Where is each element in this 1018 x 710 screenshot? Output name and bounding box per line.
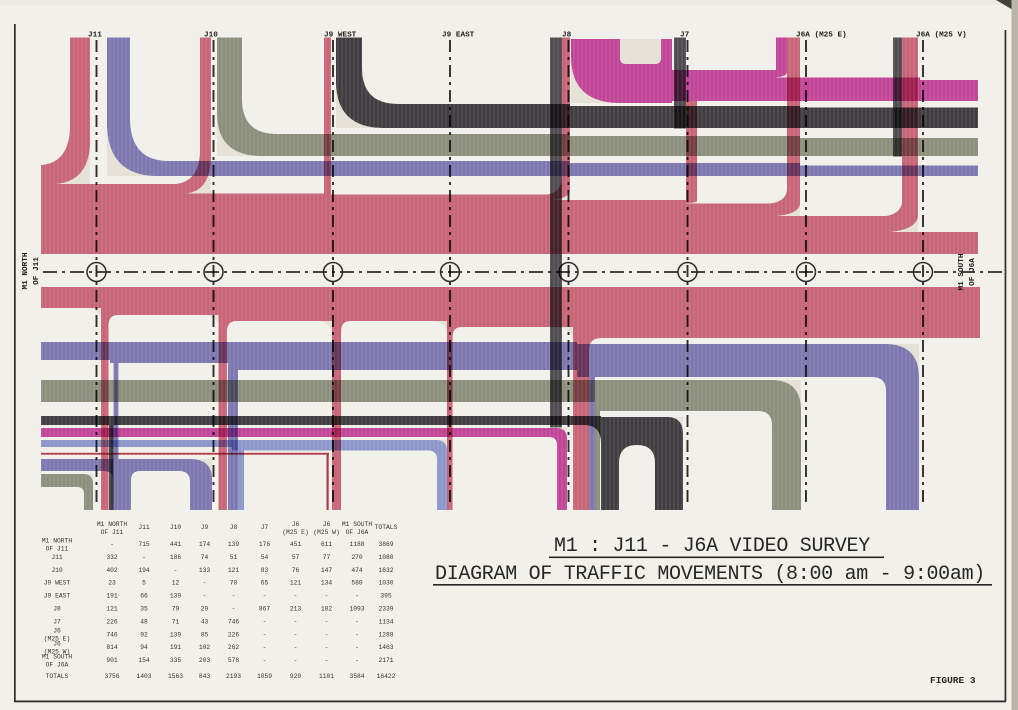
svg-text:1134: 1134 (378, 618, 393, 625)
svg-text:71: 71 (172, 618, 180, 625)
svg-text:J9 EAST: J9 EAST (442, 32, 475, 40)
svg-text:M1 SOUTH: M1 SOUTH (958, 253, 966, 290)
svg-text:194: 194 (138, 567, 150, 574)
svg-text:121: 121 (228, 567, 240, 574)
svg-text:-: - (294, 618, 298, 625)
svg-text:J11: J11 (88, 32, 102, 40)
svg-text:(M25 W): (M25 W) (313, 529, 339, 536)
svg-text:1632: 1632 (378, 567, 393, 574)
svg-text:121: 121 (290, 580, 302, 587)
svg-text:-: - (355, 644, 359, 651)
svg-text:147: 147 (321, 567, 333, 574)
svg-text:J8: J8 (562, 32, 572, 40)
svg-text:-: - (263, 593, 267, 600)
svg-text:746: 746 (106, 631, 118, 638)
svg-text:M1 : J11 - J6A VIDEO SURVEY: M1 : J11 - J6A VIDEO SURVEY (554, 535, 870, 558)
svg-text:57: 57 (292, 554, 300, 561)
svg-text:1059: 1059 (257, 673, 272, 680)
svg-text:-: - (232, 593, 236, 600)
svg-text:-: - (110, 541, 114, 548)
svg-text:-: - (325, 631, 329, 638)
svg-text:J6: J6 (53, 628, 61, 635)
svg-text:J9 WEST: J9 WEST (44, 580, 71, 587)
svg-text:174: 174 (199, 541, 211, 548)
svg-text:J7: J7 (680, 32, 690, 40)
svg-text:TOTALS: TOTALS (375, 524, 398, 531)
svg-text:134: 134 (321, 580, 333, 587)
svg-text:580: 580 (351, 580, 363, 587)
svg-text:1403: 1403 (136, 673, 151, 680)
svg-text:441: 441 (170, 541, 182, 548)
svg-text:OF J6A: OF J6A (969, 258, 977, 286)
svg-text:-: - (294, 631, 298, 638)
svg-text:J8: J8 (230, 524, 238, 531)
svg-text:FIGURE 3: FIGURE 3 (930, 675, 976, 686)
svg-text:J6: J6 (292, 521, 300, 528)
svg-text:-: - (355, 593, 359, 600)
svg-text:139: 139 (170, 593, 182, 600)
svg-text:3584: 3584 (349, 673, 364, 680)
svg-text:3756: 3756 (104, 673, 119, 680)
svg-text:1101: 1101 (319, 673, 334, 680)
svg-text:J7: J7 (53, 618, 61, 625)
svg-text:J7: J7 (261, 524, 269, 531)
svg-text:121: 121 (106, 606, 118, 613)
svg-text:191: 191 (170, 644, 182, 651)
svg-text:1080: 1080 (378, 554, 393, 561)
svg-text:OF J11: OF J11 (33, 257, 41, 285)
svg-text:186: 186 (170, 554, 182, 561)
svg-text:J9 WEST: J9 WEST (324, 32, 357, 40)
svg-text:814: 814 (106, 644, 118, 651)
svg-text:J8: J8 (53, 606, 61, 613)
svg-text:2171: 2171 (378, 657, 393, 664)
svg-text:270: 270 (351, 554, 363, 561)
svg-text:-: - (263, 631, 267, 638)
svg-text:-: - (263, 644, 267, 651)
svg-text:139: 139 (228, 541, 240, 548)
svg-text:133: 133 (199, 567, 211, 574)
svg-text:-: - (203, 580, 207, 587)
svg-text:-: - (174, 567, 178, 574)
svg-text:J9 EAST: J9 EAST (44, 593, 71, 600)
svg-text:J10: J10 (51, 567, 63, 574)
svg-text:-: - (232, 606, 236, 613)
svg-text:1463: 1463 (378, 644, 393, 651)
svg-text:43: 43 (201, 618, 209, 625)
svg-text:1093: 1093 (349, 606, 364, 613)
svg-text:139: 139 (170, 631, 182, 638)
svg-text:85: 85 (201, 631, 209, 638)
svg-text:-: - (325, 644, 329, 651)
svg-text:12: 12 (172, 580, 180, 587)
svg-text:94: 94 (140, 644, 148, 651)
svg-text:J11: J11 (51, 554, 63, 561)
svg-text:203: 203 (199, 657, 211, 664)
svg-text:901: 901 (106, 657, 118, 664)
svg-text:5: 5 (142, 580, 146, 587)
svg-text:TOTALS: TOTALS (46, 673, 69, 680)
svg-text:-: - (142, 554, 146, 561)
svg-text:578: 578 (228, 657, 240, 664)
svg-text:3869: 3869 (378, 541, 393, 548)
svg-text:262: 262 (228, 644, 240, 651)
svg-text:70: 70 (230, 580, 238, 587)
svg-text:611: 611 (321, 541, 333, 548)
svg-text:76: 76 (292, 567, 300, 574)
svg-text:(M25 E): (M25 E) (282, 529, 308, 536)
svg-text:M1 NORTH: M1 NORTH (42, 537, 72, 544)
svg-text:48: 48 (140, 618, 148, 625)
svg-text:M1 SOUTH: M1 SOUTH (42, 654, 72, 661)
svg-text:451: 451 (290, 541, 302, 548)
svg-text:191: 191 (106, 593, 118, 600)
svg-text:-: - (263, 657, 267, 664)
svg-text:1188: 1188 (349, 541, 364, 548)
svg-text:J6: J6 (53, 641, 61, 648)
svg-text:DIAGRAM OF TRAFFIC MOVEMENTS (: DIAGRAM OF TRAFFIC MOVEMENTS (8:00 am - … (435, 563, 985, 586)
svg-text:474: 474 (351, 567, 363, 574)
svg-text:J10: J10 (170, 524, 182, 531)
svg-text:92: 92 (140, 631, 148, 638)
svg-text:-: - (203, 593, 207, 600)
svg-text:920: 920 (290, 673, 302, 680)
svg-text:-: - (325, 593, 329, 600)
svg-text:1030: 1030 (378, 580, 393, 587)
svg-text:1563: 1563 (168, 673, 183, 680)
svg-text:M1 NORTH: M1 NORTH (97, 521, 127, 528)
svg-text:35: 35 (140, 606, 148, 613)
svg-text:29: 29 (201, 606, 209, 613)
svg-text:332: 332 (106, 554, 118, 561)
svg-text:J10: J10 (204, 32, 218, 40)
svg-text:-: - (355, 618, 359, 625)
svg-text:-: - (355, 631, 359, 638)
svg-text:2193: 2193 (226, 673, 241, 680)
svg-text:176: 176 (259, 541, 271, 548)
svg-text:77: 77 (323, 554, 331, 561)
svg-text:1288: 1288 (378, 631, 393, 638)
svg-text:-: - (294, 657, 298, 664)
svg-text:102: 102 (199, 644, 211, 651)
svg-text:16422: 16422 (377, 673, 396, 680)
svg-text:843: 843 (199, 673, 211, 680)
svg-text:23: 23 (108, 580, 116, 587)
svg-text:-: - (325, 657, 329, 664)
svg-text:-: - (294, 644, 298, 651)
svg-text:J9: J9 (201, 524, 209, 531)
svg-text:213: 213 (290, 606, 302, 613)
svg-text:OF J6A: OF J6A (46, 662, 69, 669)
svg-text:51: 51 (230, 554, 238, 561)
svg-text:2339: 2339 (378, 606, 393, 613)
svg-text:66: 66 (140, 593, 148, 600)
svg-text:65: 65 (261, 580, 269, 587)
svg-text:867: 867 (259, 606, 271, 613)
svg-text:OF J6A: OF J6A (346, 529, 369, 536)
svg-text:83: 83 (261, 567, 269, 574)
svg-text:74: 74 (201, 554, 209, 561)
svg-text:-: - (294, 593, 298, 600)
svg-text:J6: J6 (323, 521, 331, 528)
svg-text:335: 335 (170, 657, 182, 664)
svg-text:J6A (M25 E): J6A (M25 E) (796, 32, 847, 40)
svg-text:402: 402 (106, 567, 118, 574)
svg-text:-: - (263, 618, 267, 625)
svg-text:395: 395 (380, 593, 392, 600)
svg-text:M1 NORTH: M1 NORTH (22, 252, 30, 289)
svg-text:226: 226 (106, 618, 118, 625)
svg-text:226: 226 (228, 631, 240, 638)
svg-text:746: 746 (228, 618, 240, 625)
svg-text:J6A (M25 V): J6A (M25 V) (916, 32, 967, 40)
svg-text:715: 715 (138, 541, 150, 548)
svg-text:M1 SOUTH: M1 SOUTH (342, 521, 372, 528)
svg-text:OF J11: OF J11 (101, 529, 124, 536)
svg-text:79: 79 (172, 606, 180, 613)
svg-text:OF J11: OF J11 (46, 545, 69, 552)
svg-text:-: - (355, 657, 359, 664)
svg-text:-: - (325, 618, 329, 625)
svg-text:54: 54 (261, 554, 269, 561)
svg-text:J11: J11 (138, 524, 150, 531)
svg-text:154: 154 (138, 657, 150, 664)
svg-text:182: 182 (321, 606, 333, 613)
